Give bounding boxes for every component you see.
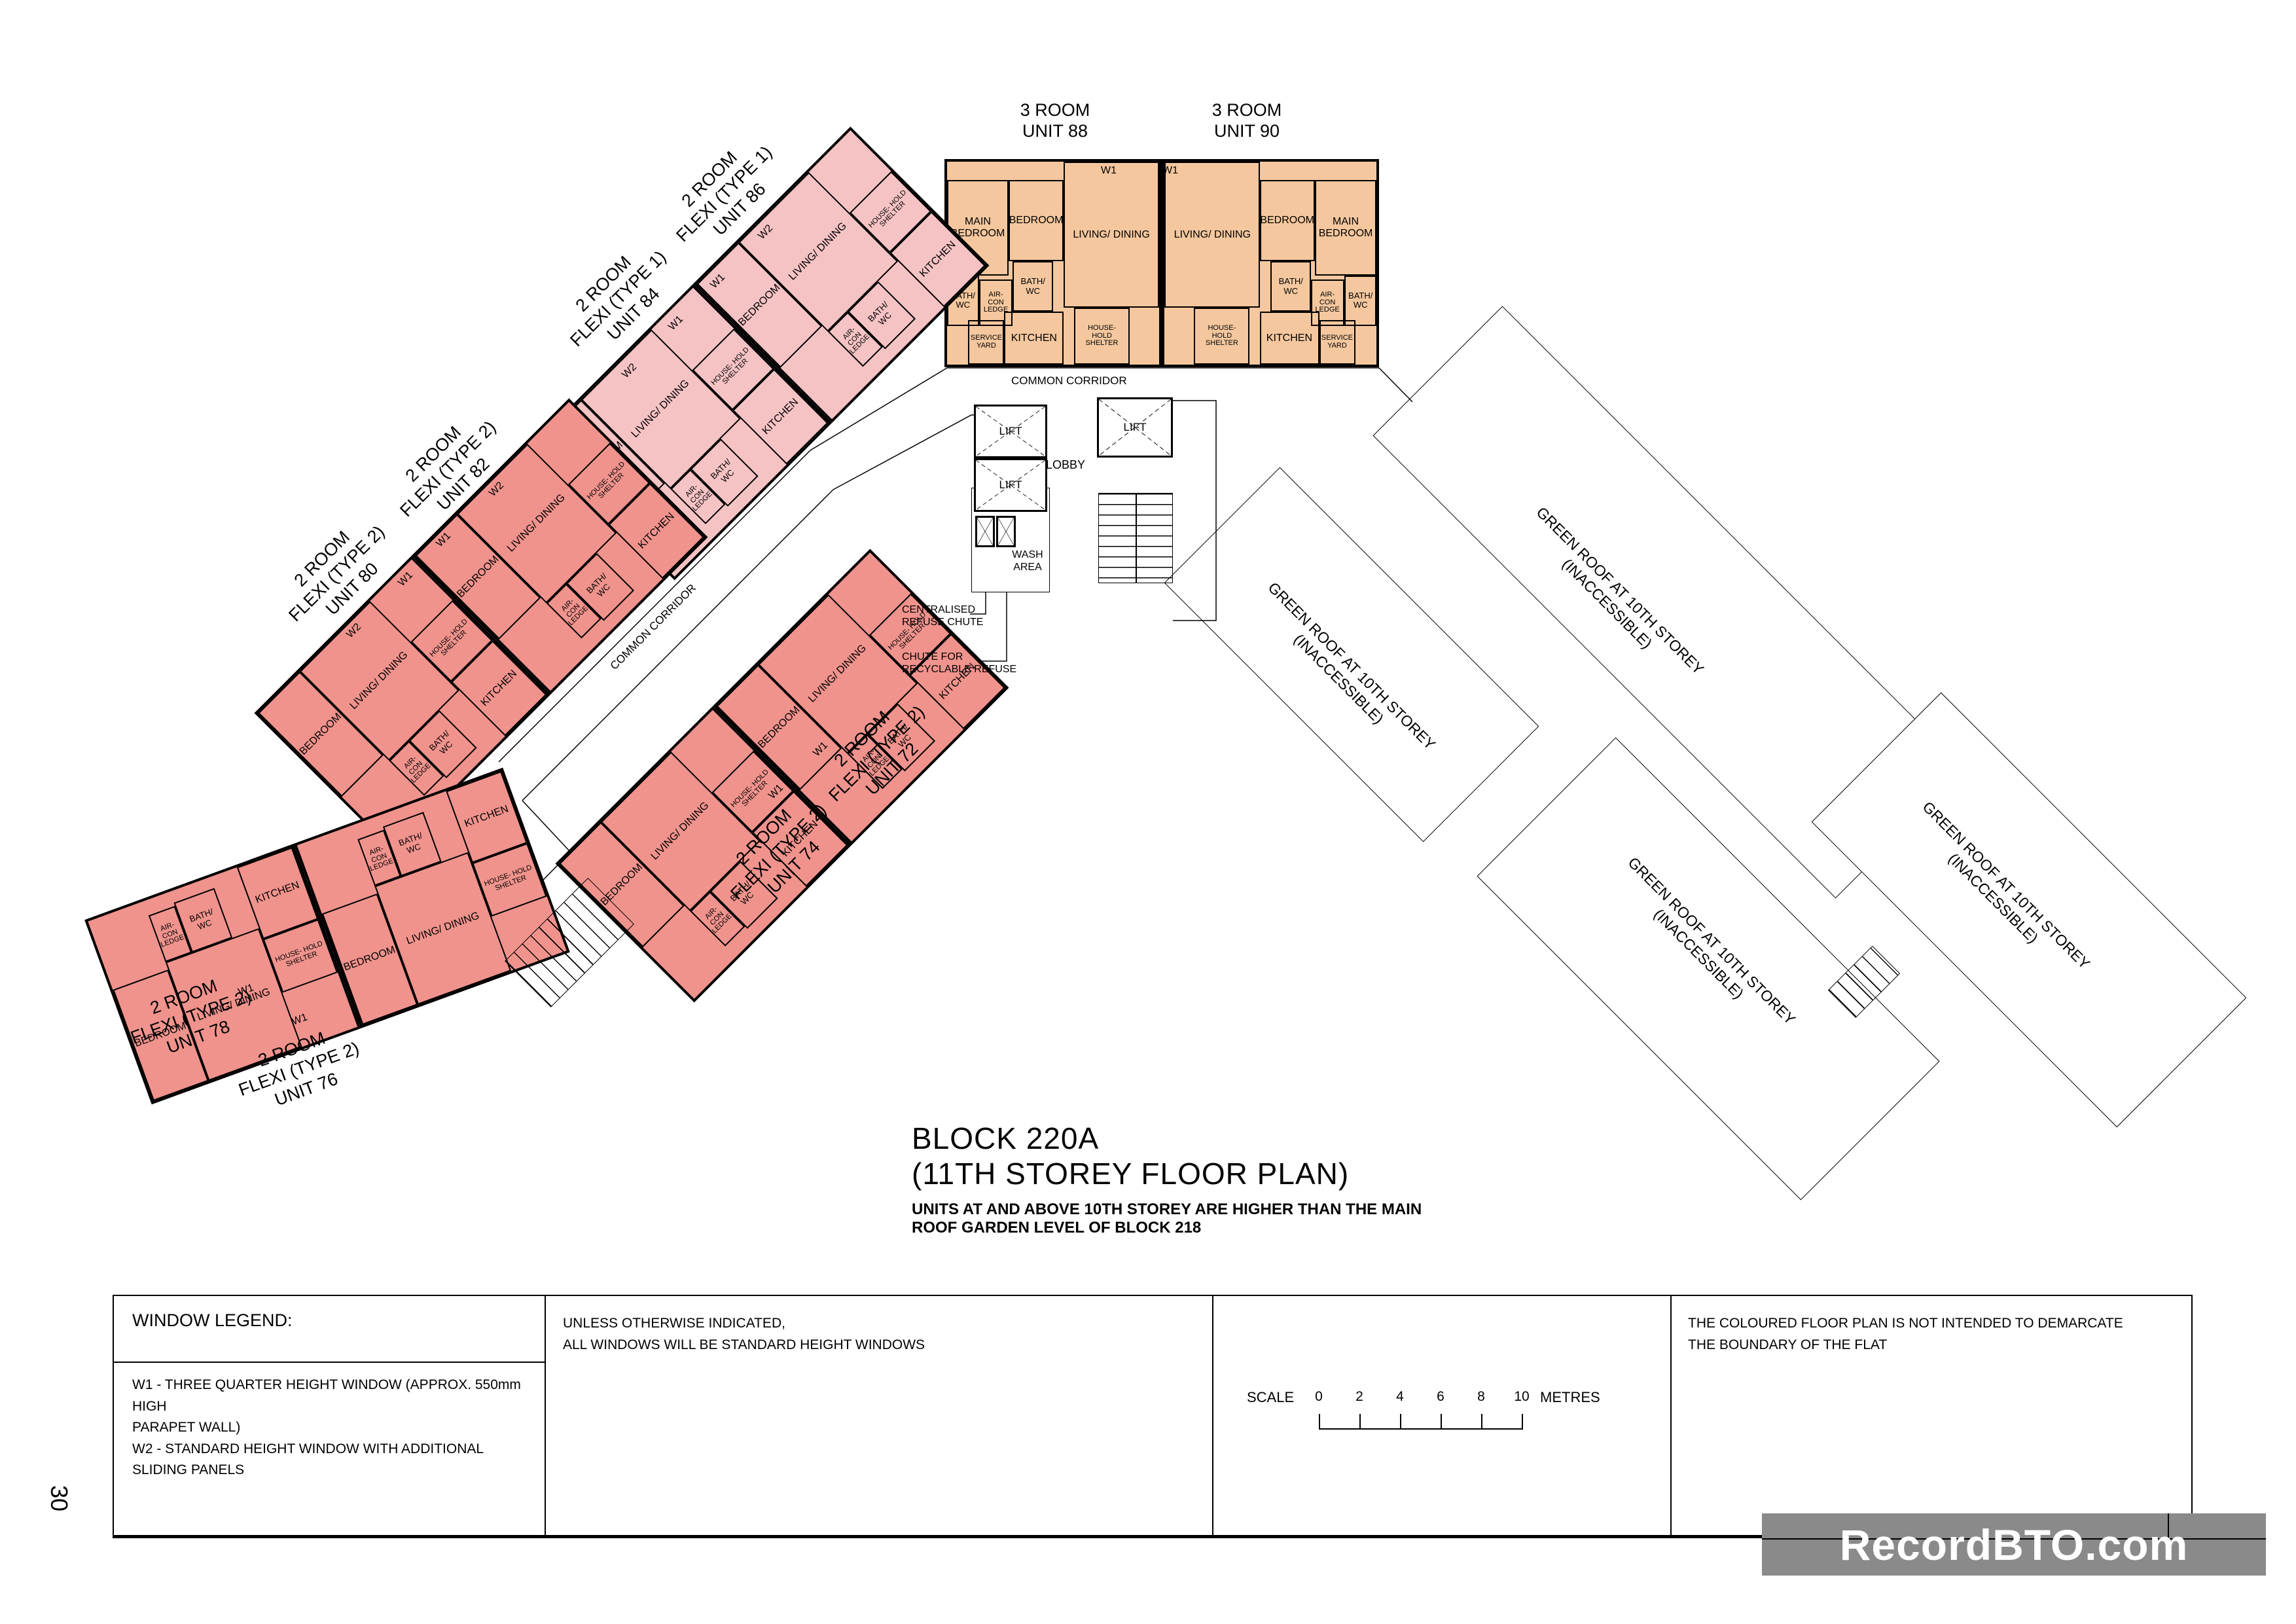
scale-tick bbox=[1441, 1414, 1442, 1428]
window-marker-w1: W1 bbox=[1162, 165, 1178, 177]
windows-note-line2: ALL WINDOWS WILL BE STANDARD HEIGHT WIND… bbox=[563, 1335, 1191, 1356]
disclaimer-line1: THE COLOURED FLOOR PLAN IS NOT INTENDED … bbox=[1688, 1313, 2185, 1335]
legend-w2-line: W2 - STANDARD HEIGHT WINDOW WITH ADDITIO… bbox=[132, 1439, 525, 1481]
corridor-line bbox=[1379, 368, 1412, 402]
room-kitchen: KITCHEN bbox=[1260, 312, 1319, 365]
unit-pair-88-90: MAIN BEDROOM BEDROOM LIVING/ DINING BATH… bbox=[944, 159, 1379, 367]
room-main-bedroom: MAIN BEDROOM bbox=[1315, 180, 1376, 276]
scale-bar: SCALE 0 2 4 6 8 10 METRES bbox=[1247, 1389, 1613, 1430]
legend-divider bbox=[545, 1296, 546, 1535]
scale-number: 10 bbox=[1509, 1389, 1535, 1405]
room-service-yard: SERVICE YARD bbox=[968, 320, 1004, 365]
lobby-label: LOBBY bbox=[1046, 458, 1085, 473]
room-bath-wc: BATH/ WC bbox=[1270, 261, 1311, 312]
unit-90: MAIN BEDROOM BEDROOM LIVING/ DINING BATH… bbox=[1162, 159, 1379, 367]
scale-tick bbox=[1522, 1414, 1523, 1428]
disclaimer: THE COLOURED FLOOR PLAN IS NOT INTENDED … bbox=[1688, 1313, 2185, 1356]
scale-number: 6 bbox=[1427, 1389, 1454, 1405]
scale-number: 2 bbox=[1346, 1389, 1372, 1405]
room-living-dining: LIVING/ DINING bbox=[1064, 162, 1159, 308]
title-block-number: BLOCK 220A bbox=[912, 1121, 1422, 1156]
scale-number: 0 bbox=[1306, 1389, 1332, 1405]
disclaimer-line2: THE BOUNDARY OF THE FLAT bbox=[1688, 1335, 2185, 1356]
recyclable-chute-box bbox=[996, 516, 1016, 547]
lift-shaft: LIFT bbox=[974, 405, 1047, 458]
page-number: 30 bbox=[45, 1485, 73, 1511]
stair-rail bbox=[1136, 494, 1137, 583]
stair-core bbox=[1098, 493, 1173, 583]
legend-w1-line1: W1 - THREE QUARTER HEIGHT WINDOW (APPROX… bbox=[132, 1375, 525, 1417]
scale-number: 4 bbox=[1387, 1389, 1413, 1405]
lift-shaft: LIFT bbox=[1097, 397, 1173, 458]
watermark: RecordBTO.com bbox=[1762, 1513, 2266, 1576]
lift-label: LIFT bbox=[1099, 421, 1171, 434]
room-household-shelter: HOUSE- HOLD SHELTER bbox=[1194, 308, 1249, 365]
wash-area-label: WASH AREA bbox=[1001, 549, 1054, 573]
scale-label: SCALE bbox=[1247, 1389, 1294, 1406]
window-marker-w1: W1 bbox=[1101, 165, 1117, 177]
room-kitchen: KITCHEN bbox=[1004, 312, 1064, 365]
lift-label: LIFT bbox=[976, 425, 1045, 438]
scale-tick bbox=[1481, 1414, 1482, 1428]
legend-w1-line2: PARAPET WALL) bbox=[132, 1417, 525, 1439]
recyclable-chute-label: CHUTE FORRECYCLABLE REFUSE bbox=[902, 651, 1016, 676]
legend-header-divider bbox=[114, 1362, 545, 1363]
room-bedroom: BEDROOM bbox=[1009, 180, 1064, 261]
window-legend-body: W1 - THREE QUARTER HEIGHT WINDOW (APPROX… bbox=[132, 1375, 525, 1481]
legend-table: WINDOW LEGEND: W1 - THREE QUARTER HEIGHT… bbox=[113, 1295, 2193, 1538]
scale-tick bbox=[1359, 1414, 1361, 1428]
unit-90-label: 3 ROOMUNIT 90 bbox=[1191, 99, 1302, 142]
scale-tick bbox=[1400, 1414, 1401, 1428]
scale-tick bbox=[1319, 1414, 1320, 1428]
watermark-text: RecordBTO.com bbox=[1840, 1520, 2189, 1570]
legend-divider bbox=[1212, 1296, 1213, 1535]
centralised-chute-label: CENTRALISEDREFUSE CHUTE bbox=[902, 604, 983, 628]
room-household-shelter: HOUSE- HOLD SHELTER bbox=[1074, 308, 1129, 365]
window-legend-title: WINDOW LEGEND: bbox=[132, 1310, 293, 1331]
room-bedroom: BEDROOM bbox=[1260, 180, 1315, 261]
windows-note-line1: UNLESS OTHERWISE INDICATED, bbox=[563, 1313, 1191, 1335]
lobby-outline bbox=[1173, 401, 1216, 621]
scale-number: 8 bbox=[1468, 1389, 1494, 1405]
lift-shaft: LIFT bbox=[974, 458, 1047, 512]
room-bath-wc: BATH/ WC bbox=[1344, 276, 1376, 327]
scale-unit: METRES bbox=[1540, 1389, 1600, 1406]
scale-ruler: 0 2 4 6 8 10 bbox=[1319, 1413, 1523, 1430]
floor-plan-page: { "page": { "page_number": "30" }, "titl… bbox=[0, 0, 2296, 1624]
title-note-line2: ROOF GARDEN LEVEL OF BLOCK 218 bbox=[912, 1219, 1422, 1237]
windows-note: UNLESS OTHERWISE INDICATED, ALL WINDOWS … bbox=[563, 1313, 1191, 1356]
title-storey: (11TH STOREY FLOOR PLAN) bbox=[912, 1156, 1422, 1191]
common-corridor-label: COMMON CORRIDOR bbox=[1011, 374, 1127, 388]
plan-title: BLOCK 220A (11TH STOREY FLOOR PLAN) UNIT… bbox=[912, 1121, 1422, 1237]
room-service-yard: SERVICE YARD bbox=[1319, 320, 1355, 365]
lift-label: LIFT bbox=[976, 478, 1045, 492]
room-living-dining: LIVING/ DINING bbox=[1164, 162, 1260, 308]
legend-divider bbox=[1670, 1296, 1672, 1535]
title-note-line1: UNITS AT AND ABOVE 10TH STOREY ARE HIGHE… bbox=[912, 1200, 1422, 1219]
refuse-chute-box bbox=[975, 516, 995, 547]
room-bath-wc: BATH/ WC bbox=[1013, 261, 1053, 312]
unit-88-label: 3 ROOMUNIT 88 bbox=[999, 99, 1111, 142]
